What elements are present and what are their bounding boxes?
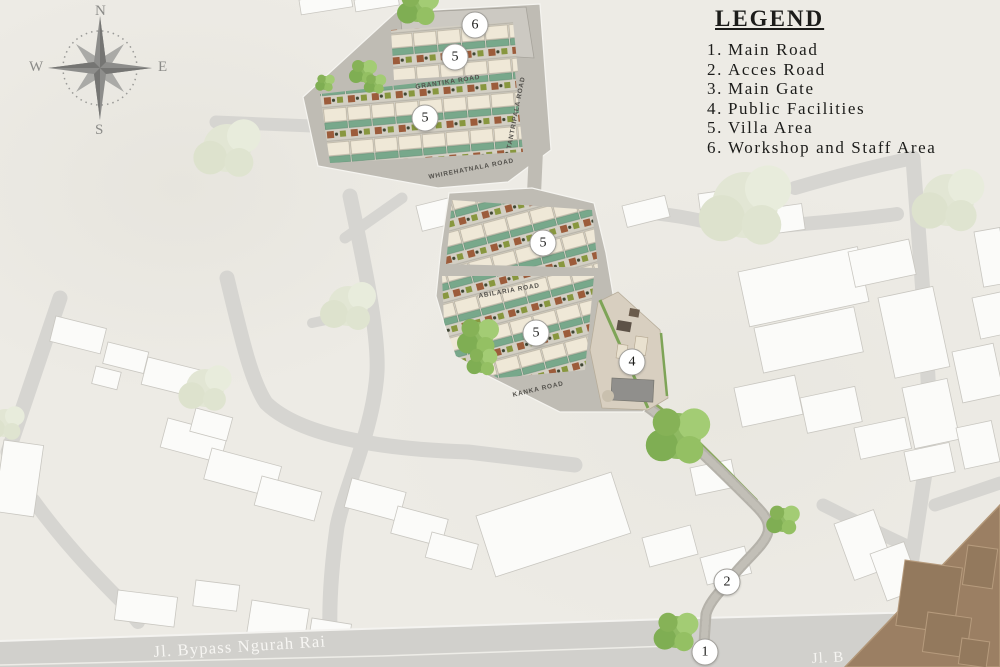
building-footprint bbox=[114, 590, 177, 627]
building-footprint bbox=[103, 342, 149, 374]
villa-cluster-north bbox=[303, 4, 551, 194]
road bbox=[935, 483, 1000, 505]
building-footprint bbox=[902, 378, 960, 448]
compass-south-label: S bbox=[95, 122, 103, 139]
building-footprint bbox=[734, 375, 803, 427]
building-footprint bbox=[974, 227, 1000, 287]
building-footprint bbox=[878, 286, 950, 378]
tree bbox=[315, 75, 335, 92]
building-footprint bbox=[425, 532, 478, 570]
compass-icon bbox=[48, 16, 152, 120]
marker-6-workshop: 6 bbox=[462, 12, 489, 39]
building-footprint bbox=[50, 316, 107, 354]
villa-band bbox=[446, 200, 598, 268]
building-footprint bbox=[354, 0, 399, 12]
tree bbox=[467, 349, 498, 375]
marker-5-villa-area: 5 bbox=[530, 230, 557, 257]
marker-5-villa-area: 5 bbox=[523, 320, 550, 347]
legend-item: 1. Main Road bbox=[703, 40, 995, 60]
building-footprint bbox=[193, 580, 240, 611]
tree bbox=[397, 0, 439, 25]
building-footprint bbox=[92, 366, 122, 390]
building-footprint bbox=[254, 476, 322, 521]
legend-item: 5. Villa Area bbox=[703, 118, 995, 138]
building-footprint bbox=[848, 239, 916, 287]
compass-west-label: W bbox=[29, 59, 43, 76]
compass-east-label: E bbox=[158, 59, 167, 76]
road bbox=[330, 196, 377, 648]
marker-4-facilities: 4 bbox=[619, 349, 646, 376]
legend-item: 6. Workshop and Staff Area bbox=[703, 138, 995, 158]
legend-title: LEGEND bbox=[715, 6, 995, 32]
tree-pale bbox=[912, 169, 985, 231]
marker-5-villa-area: 5 bbox=[412, 105, 439, 132]
building-footprint bbox=[299, 0, 353, 15]
building-footprint bbox=[642, 525, 698, 567]
tree-pale bbox=[320, 282, 376, 330]
site-plan-canvas: Jl. B N W E S LEGEND 1. Main Road 2. bbox=[0, 0, 1000, 667]
legend-item: 3. Main Gate bbox=[703, 79, 995, 99]
partial-road-label: Jl. B bbox=[811, 649, 844, 667]
legend-item: 2. Acces Road bbox=[703, 60, 995, 80]
tree-pale bbox=[699, 165, 791, 244]
marker-2-acces-road: 2 bbox=[714, 569, 741, 596]
building-footprint bbox=[476, 472, 631, 577]
compass-north-label: N bbox=[95, 3, 106, 20]
building-footprint bbox=[952, 343, 1000, 403]
building-footprint bbox=[956, 421, 1000, 470]
marker-1-main-road: 1 bbox=[692, 639, 719, 666]
tree bbox=[364, 74, 386, 93]
marker-5-villa-area: 5 bbox=[442, 44, 469, 71]
tree bbox=[646, 408, 710, 463]
building-footprint bbox=[800, 386, 862, 433]
building-footprint bbox=[972, 291, 1000, 339]
legend: LEGEND 1. Main Road 2. Acces Road 3. Mai… bbox=[703, 6, 995, 158]
road bbox=[795, 158, 913, 188]
building-footprint bbox=[622, 195, 670, 227]
tree bbox=[766, 506, 800, 535]
legend-item: 4. Public Facilities bbox=[703, 99, 995, 119]
building-footprint bbox=[854, 417, 912, 459]
tree-pale bbox=[193, 119, 260, 177]
tree bbox=[654, 613, 699, 651]
